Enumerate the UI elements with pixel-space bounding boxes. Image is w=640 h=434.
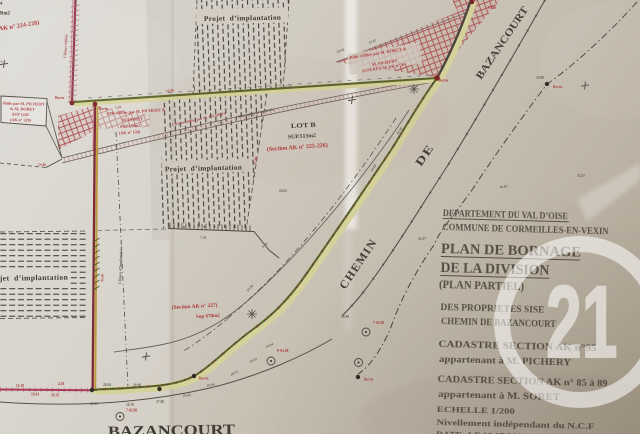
svg-text:21: 21: [546, 266, 617, 380]
